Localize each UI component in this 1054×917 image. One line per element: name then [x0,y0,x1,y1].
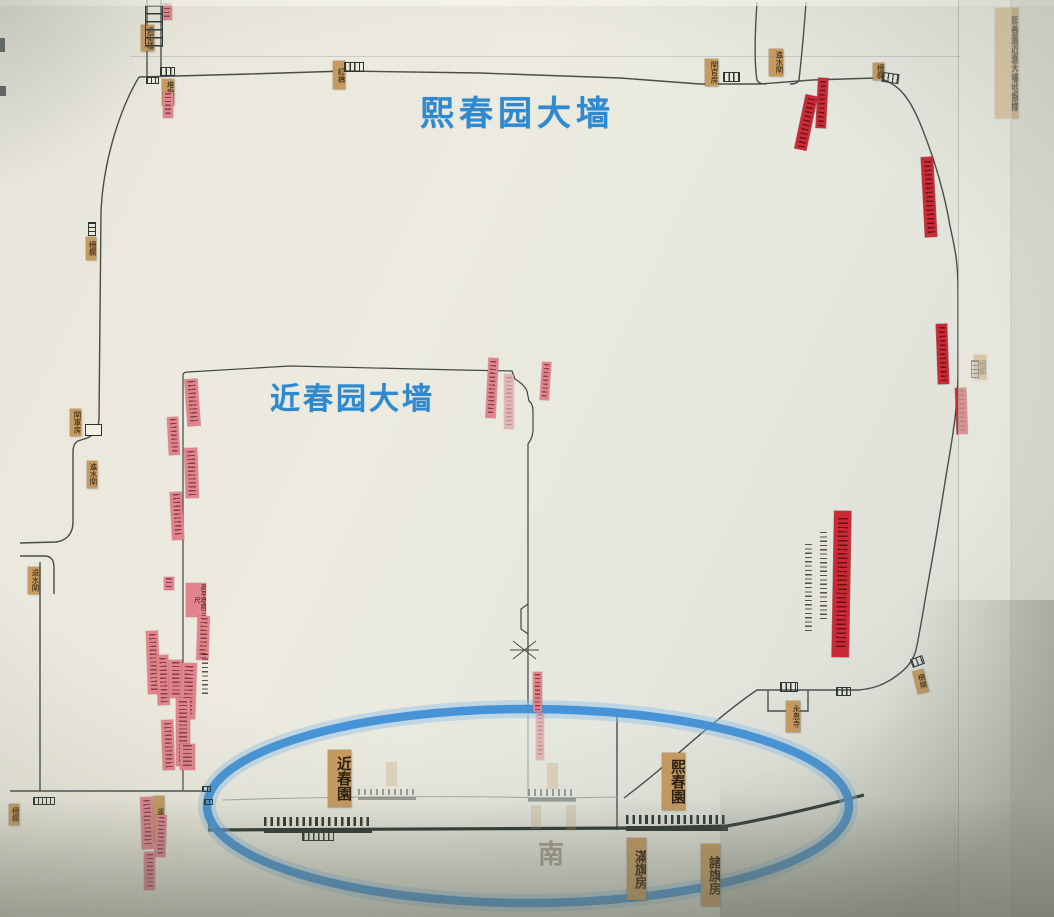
outer-wall-top [139,71,876,84]
gate-bracket [768,691,808,711]
jinchun-wall-title: 近春园大墙 [270,374,435,418]
map-photo: 熙春園近園大墻地盤樣過街樓堆撥房紅橋閘官房進水閘柵欄柵欄閘軍房進水閘退水閘柵欄運… [0,0,1054,917]
xichun-wall-title: 熙春园大墙 [420,86,615,135]
channel-west-lower [20,556,54,594]
outer-wall-south-left [10,791,209,830]
outer-wall-west [20,77,139,543]
road-top-left [147,0,161,76]
outer-wall-south [208,795,864,830]
road-top-right [755,2,806,84]
outer-wall-east [757,78,958,690]
sluice-mark [510,641,539,659]
old-wall-faint [222,797,618,800]
map-linework [0,0,1054,917]
inner-wall-jog [521,604,528,634]
outer-wall-southeast [624,690,757,798]
